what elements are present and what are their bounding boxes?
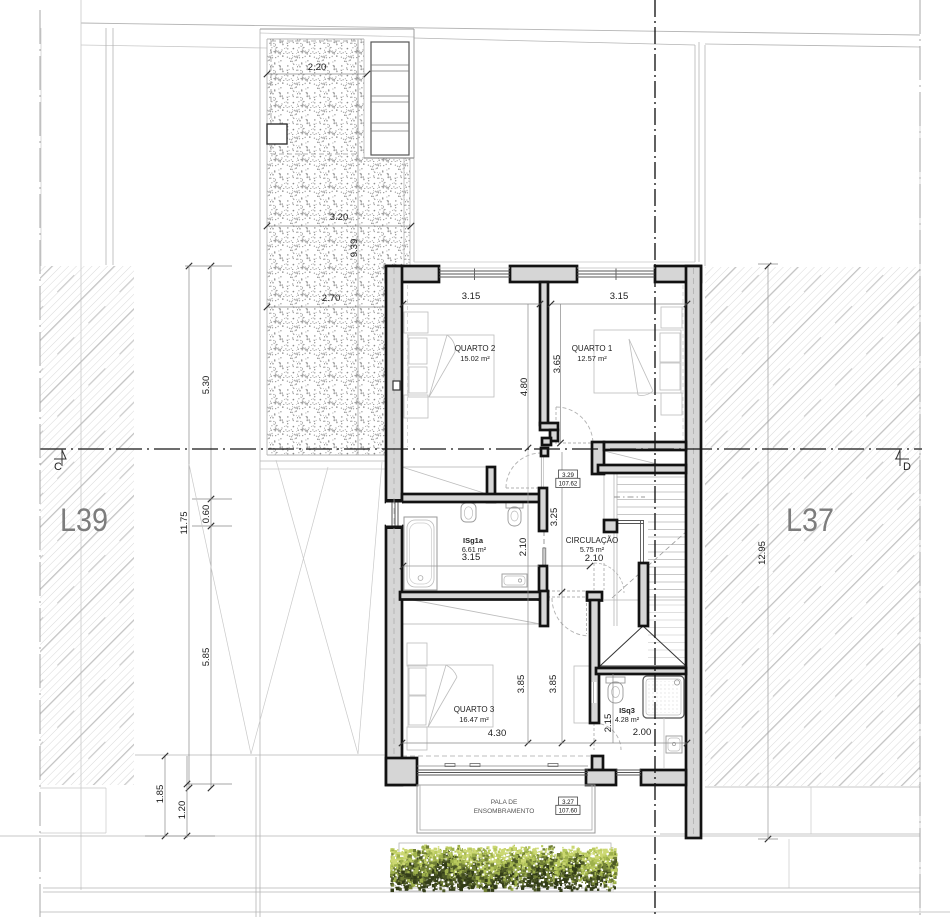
svg-text:3.15: 3.15	[610, 291, 629, 302]
svg-text:2.20: 2.20	[308, 62, 327, 73]
svg-text:12.95: 12.95	[757, 541, 768, 565]
svg-text:5.85: 5.85	[201, 648, 212, 667]
svg-text:C: C	[54, 461, 62, 473]
svg-text:3.65: 3.65	[552, 355, 563, 374]
svg-text:CIRCULAÇÃO: CIRCULAÇÃO	[566, 536, 618, 545]
svg-text:3.85: 3.85	[548, 675, 559, 694]
svg-text:4.80: 4.80	[519, 378, 530, 397]
svg-text:107.60: 107.60	[559, 808, 578, 815]
svg-text:QUARTO 1: QUARTO 1	[572, 344, 613, 353]
svg-text:1.20: 1.20	[177, 801, 188, 820]
svg-text:5.75 m²: 5.75 m²	[580, 545, 605, 554]
svg-text:3.29: 3.29	[562, 472, 574, 479]
svg-text:3.85: 3.85	[516, 675, 527, 694]
svg-text:3.15: 3.15	[462, 291, 481, 302]
svg-text:4.30: 4.30	[488, 728, 507, 739]
svg-text:QUARTO 2: QUARTO 2	[455, 344, 496, 353]
svg-text:L39: L39	[60, 502, 108, 538]
svg-text:0.60: 0.60	[201, 505, 212, 524]
svg-text:16.47 m²: 16.47 m²	[459, 715, 489, 724]
svg-text:6.61 m²: 6.61 m²	[462, 545, 487, 554]
svg-text:2.15: 2.15	[603, 714, 614, 733]
svg-text:11.75: 11.75	[179, 511, 190, 534]
svg-text:1.85: 1.85	[155, 785, 166, 804]
svg-text:ENSOMBRAMENTO: ENSOMBRAMENTO	[474, 808, 535, 815]
svg-text:15.02 m²: 15.02 m²	[460, 354, 490, 363]
svg-text:2.10: 2.10	[585, 553, 604, 564]
svg-text:3.25: 3.25	[549, 508, 560, 527]
svg-text:QUARTO 3: QUARTO 3	[454, 705, 495, 714]
svg-text:12.57 m²: 12.57 m²	[577, 354, 607, 363]
svg-text:2.70: 2.70	[322, 293, 341, 304]
svg-text:PALA DE: PALA DE	[491, 799, 518, 806]
svg-text:2.10: 2.10	[518, 538, 529, 557]
svg-text:3.20: 3.20	[330, 212, 349, 223]
svg-text:5.30: 5.30	[201, 376, 212, 395]
svg-text:9.39: 9.39	[349, 239, 360, 258]
svg-text:ISg1a: ISg1a	[463, 536, 484, 545]
svg-text:D: D	[903, 461, 911, 473]
svg-text:4.28 m²: 4.28 m²	[615, 715, 640, 724]
svg-text:107.62: 107.62	[559, 481, 578, 488]
svg-text:3.27: 3.27	[562, 799, 574, 806]
svg-text:ISq3: ISq3	[619, 706, 635, 715]
svg-text:L37: L37	[786, 502, 834, 538]
svg-text:2.00: 2.00	[633, 727, 652, 738]
